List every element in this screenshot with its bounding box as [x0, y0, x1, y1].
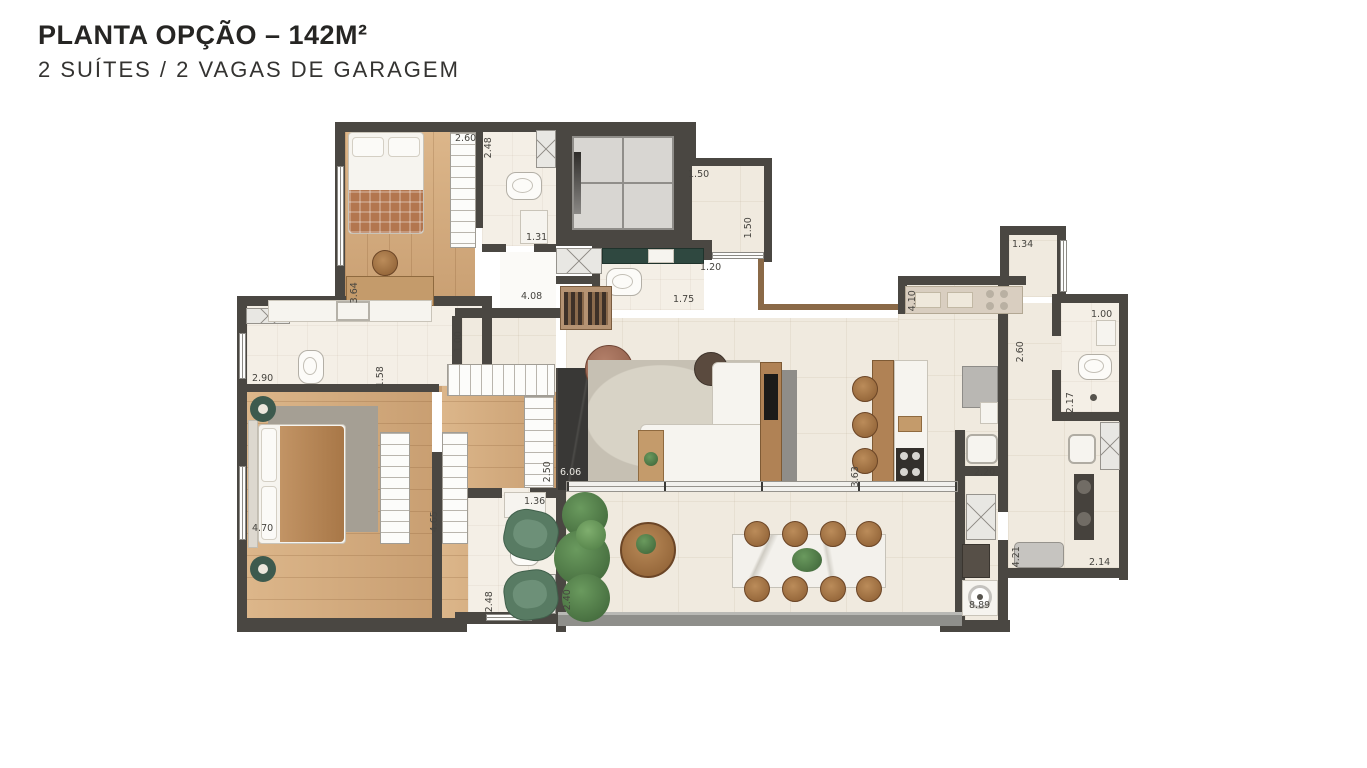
- wall-segment: [455, 308, 562, 318]
- floor-plan-page: PLANTA OPÇÃO – 142M² 2 SUÍTES / 2 VAGAS …: [0, 0, 1367, 768]
- dim-label: 2.60: [455, 134, 476, 144]
- dim-label: 1.20: [700, 263, 721, 273]
- dim-label: 1.50: [744, 217, 754, 238]
- stool: [852, 376, 878, 402]
- wall-segment: [243, 384, 439, 392]
- dim-label: 4.10: [908, 290, 918, 311]
- wardrobe: [450, 132, 476, 248]
- stool: [852, 412, 878, 438]
- dim-label: 2.20: [974, 468, 995, 478]
- wall-segment: [468, 488, 502, 498]
- burner: [912, 452, 920, 460]
- sink: [1096, 320, 1116, 346]
- dim-label: 2.48: [485, 591, 495, 612]
- dim-label: 2.17: [1066, 392, 1076, 413]
- dim-label: 2.48: [484, 137, 494, 158]
- window-sill: [758, 258, 764, 310]
- dining-chair: [856, 576, 882, 602]
- stove-burner: [986, 302, 994, 310]
- laundry-sink: [966, 434, 998, 464]
- toilet: [298, 350, 324, 384]
- wall-segment: [1119, 294, 1128, 580]
- cutting-board: [898, 416, 922, 432]
- dim-label: 2.90: [252, 374, 273, 384]
- sliding-door: [566, 481, 958, 492]
- burner: [900, 468, 908, 476]
- shower-drain: [1090, 394, 1097, 401]
- dim-label: 2.50: [543, 461, 553, 482]
- vestibule-floor: [500, 252, 556, 312]
- shower: [536, 130, 556, 168]
- dim-label: 3.63: [851, 466, 861, 487]
- toilet: [1078, 354, 1112, 380]
- wine-bottles: [588, 292, 608, 325]
- dining-chair: [820, 521, 846, 547]
- dim-label: 1.31: [526, 233, 547, 243]
- dim-label: 6.06: [560, 468, 581, 478]
- toilet: [506, 172, 542, 200]
- plant: [644, 452, 658, 466]
- window-sill: [758, 304, 904, 310]
- floor-plan: 2.60 2.48 1.31 3.64 1.50 1.50 1.20 1.75 …: [0, 0, 1367, 768]
- stove-burner: [986, 290, 994, 298]
- dim-label: 2.60: [1016, 341, 1026, 362]
- dim-label: 4.70: [252, 524, 273, 534]
- wall-segment: [482, 244, 506, 252]
- counter-module: [947, 292, 973, 308]
- wardrobe: [442, 432, 468, 544]
- lamp: [258, 564, 268, 574]
- dim-label: 1.00: [1091, 310, 1112, 320]
- tv: [764, 374, 778, 420]
- dim-label: 3.64: [350, 282, 360, 303]
- dim-label: 1.50: [688, 170, 709, 180]
- dining-chair: [744, 521, 770, 547]
- blanket: [349, 190, 423, 233]
- pillow: [352, 137, 384, 157]
- window: [239, 466, 246, 540]
- window: [337, 166, 344, 266]
- counter-module: [915, 292, 941, 308]
- media-unit: [782, 370, 797, 486]
- prep-sink: [980, 402, 998, 424]
- dining-chair: [856, 521, 882, 547]
- wall-segment: [998, 568, 1128, 578]
- doormat: [962, 544, 990, 578]
- dim-label: 2.40: [563, 589, 573, 610]
- laundry-sink: [1068, 434, 1096, 464]
- window: [1060, 240, 1067, 292]
- wall-segment: [1000, 226, 1009, 286]
- balcony-rail: [558, 612, 962, 626]
- wine-bottles: [564, 292, 584, 325]
- entry-door: [712, 252, 764, 259]
- shaft-hatch: [1100, 422, 1120, 470]
- wall-segment: [475, 122, 483, 228]
- plant-centerpiece: [792, 548, 822, 572]
- dim-label: 1.00: [454, 331, 464, 352]
- lamp: [258, 404, 268, 414]
- shaft-hatch: [966, 494, 996, 540]
- wall-segment: [534, 244, 556, 252]
- ac-fan: [1077, 480, 1091, 494]
- wall-segment: [1052, 294, 1061, 336]
- dim-label: 4.21: [1012, 546, 1022, 567]
- dim-label: 4.08: [521, 292, 542, 302]
- wall-segment: [764, 158, 772, 262]
- dining-chair: [782, 521, 808, 547]
- dining-chair: [782, 576, 808, 602]
- wall-segment: [684, 158, 772, 166]
- closet-shelves: [447, 364, 555, 396]
- dim-label: 1.75: [673, 295, 694, 305]
- wall-segment: [237, 618, 467, 632]
- dim-label: 2.14: [1089, 558, 1110, 568]
- shaft-hatch: [556, 248, 602, 274]
- dim-label: 8.89: [969, 601, 990, 611]
- wall-segment: [432, 452, 442, 622]
- duvet: [280, 426, 344, 542]
- ac-fan: [1077, 512, 1091, 526]
- dining-chair: [820, 576, 846, 602]
- wall-segment: [704, 240, 712, 260]
- desk-chair: [372, 250, 398, 276]
- plant: [636, 534, 656, 554]
- wall-segment: [556, 276, 596, 284]
- dim-label: 4.65: [430, 511, 440, 532]
- sink: [336, 301, 370, 321]
- stove-burner: [1000, 290, 1008, 298]
- wall-segment: [1052, 294, 1128, 303]
- pillow: [388, 137, 420, 157]
- dim-label: 1.58: [376, 366, 386, 387]
- wardrobe: [380, 432, 410, 544]
- burner: [912, 468, 920, 476]
- dim-label: 1.34: [1012, 240, 1033, 250]
- window: [239, 333, 246, 379]
- dim-label: 1.36: [524, 497, 545, 507]
- pillow: [261, 428, 277, 482]
- elevator-door: [574, 152, 581, 214]
- dining-chair: [744, 576, 770, 602]
- plant: [576, 520, 606, 550]
- burner: [900, 452, 908, 460]
- sink: [648, 249, 674, 263]
- elevator-car: [572, 136, 674, 230]
- stove-burner: [1000, 302, 1008, 310]
- wall-segment: [1052, 412, 1127, 421]
- wall-segment: [998, 540, 1008, 632]
